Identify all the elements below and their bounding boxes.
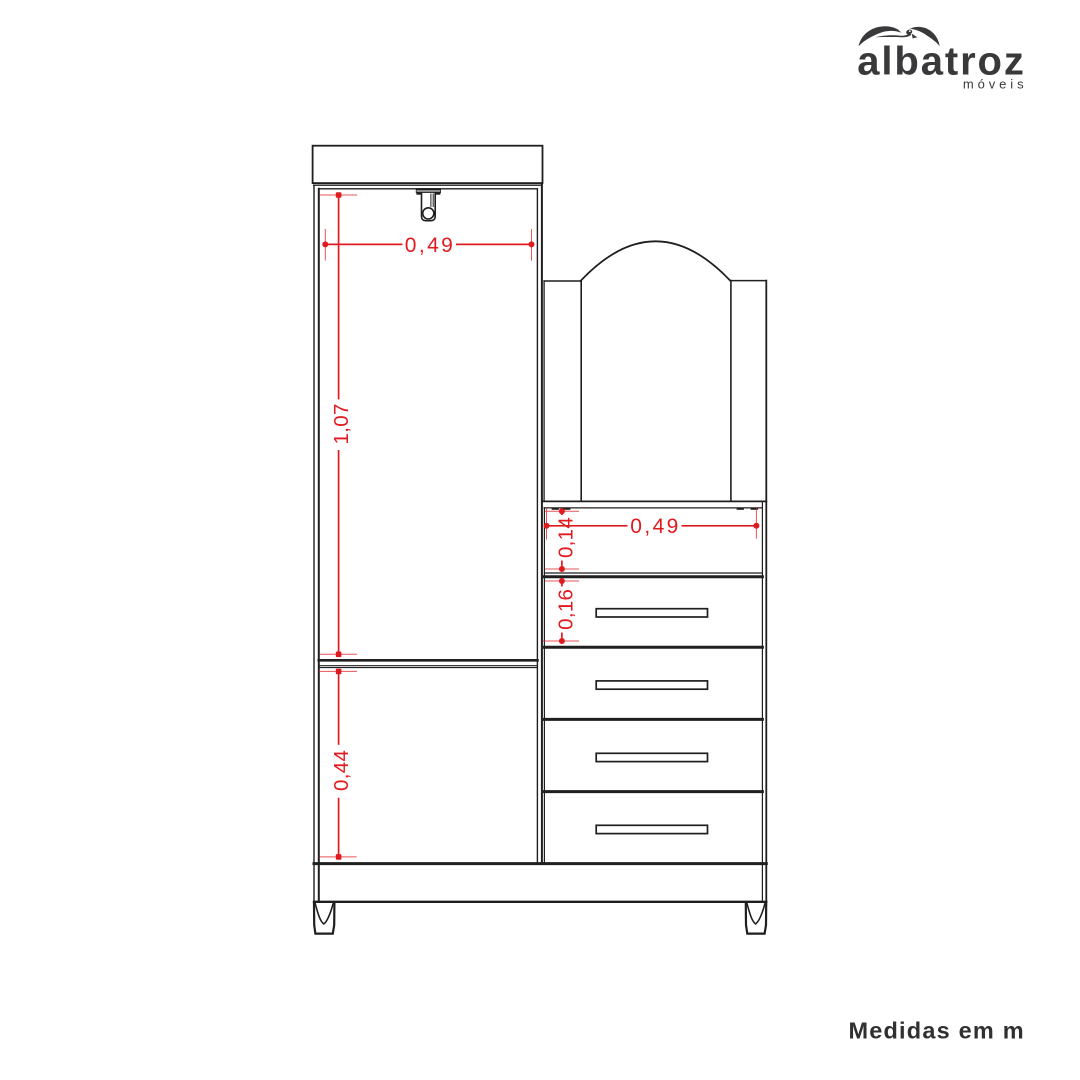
svg-text:Medidas em m: Medidas em m — [848, 1018, 1024, 1044]
svg-text:móveis: móveis — [963, 76, 1028, 91]
svg-text:0,14: 0,14 — [555, 517, 578, 558]
svg-text:0,44: 0,44 — [330, 750, 353, 791]
svg-text:0,49: 0,49 — [405, 234, 455, 257]
svg-text:1,07: 1,07 — [330, 403, 353, 444]
svg-text:0,49: 0,49 — [630, 515, 680, 538]
svg-text:0,16: 0,16 — [555, 589, 578, 630]
